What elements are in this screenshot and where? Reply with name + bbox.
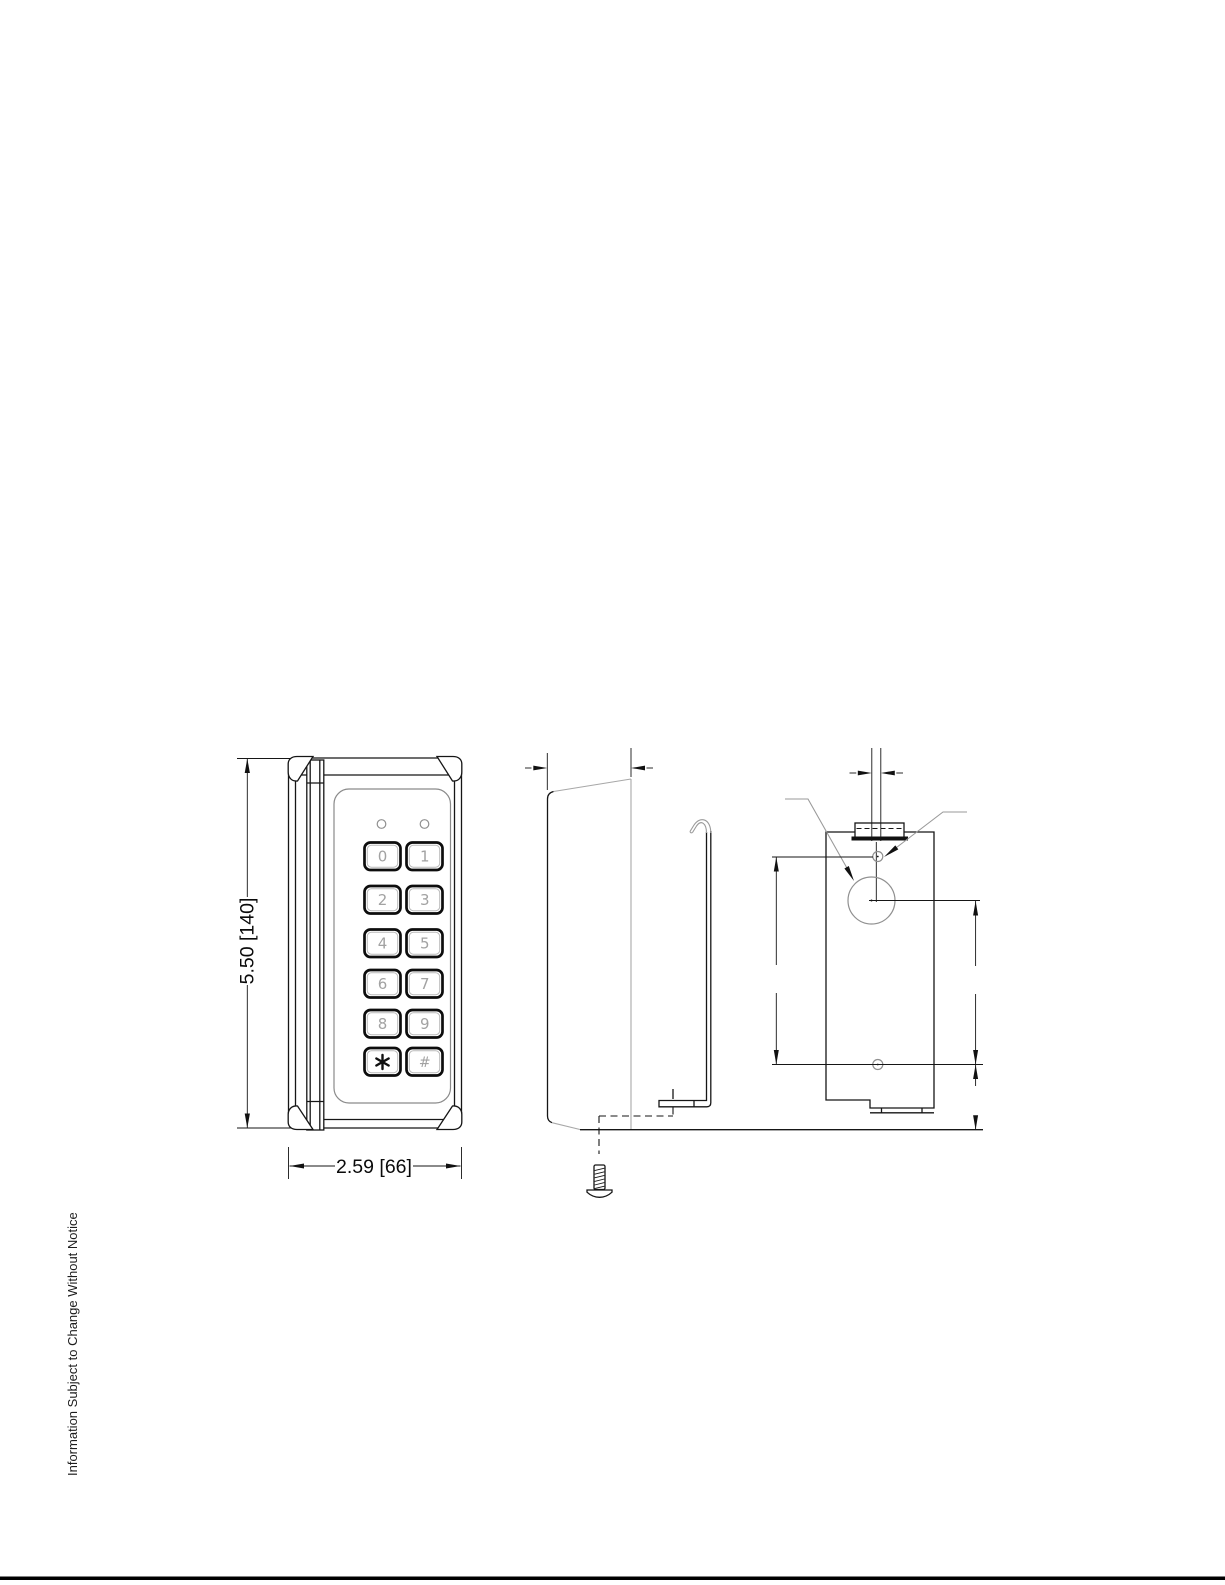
bottom-lip [870,1108,934,1113]
keypad-keys: 0 1 2 3 4 [365,843,443,1076]
svg-text:0: 0 [378,848,388,866]
led-left [377,820,386,829]
key-3: 3 [407,886,443,914]
dimension-drawing: 5.50 [140] 0 [0,0,1225,1585]
hole-to-bottom-dimension [973,1065,978,1130]
svg-text:8: 8 [378,1015,388,1033]
corner-wing-bottom-right [437,1106,462,1130]
back-plate-outline [826,832,934,1108]
housing-bottom-edge [552,1123,580,1130]
leader-line-cable-hole [785,799,854,881]
side-view [525,748,983,1197]
key-0: 0 [365,843,401,871]
depth-dimension [525,748,653,790]
height-dimension-label: 5.50 [140] [237,898,259,985]
front-view: 5.50 [140] 0 [237,757,462,1180]
height-dimension: 5.50 [140] [237,759,301,1129]
width-dimension: 2.59 [66] [289,1147,462,1179]
mounting-bracket [659,820,711,1107]
top-screw-hole [873,852,883,862]
width-dimension-label: 2.59 [66] [336,1156,412,1178]
svg-text:3: 3 [420,891,430,909]
key-5: 5 [407,930,443,958]
key-7: 7 [407,970,443,998]
svg-text:1: 1 [420,848,430,866]
corner-wing-top-right [437,757,462,782]
back-view [772,748,983,1130]
key-6: 6 [365,970,401,998]
top-tab [852,823,909,841]
bracket-top-hook [690,820,711,833]
housing-front-profile [548,792,554,1123]
svg-text:9: 9 [420,1015,430,1033]
hole-spacing-dimension [772,857,983,1065]
side-strip [307,760,324,1130]
key-9: 9 [407,1010,443,1038]
screw-assembly-path [599,1108,673,1155]
key-2: 2 [365,886,401,914]
footer-notice: Information Subject to Change Without No… [65,1212,80,1476]
housing-top-edge [554,779,632,792]
svg-text:5: 5 [420,935,430,953]
key-4: 4 [365,930,401,958]
svg-text:6: 6 [378,975,388,993]
screw-head [587,1190,612,1197]
page-bottom-rule [0,1577,1225,1581]
mounting-screw [587,1165,612,1197]
key-star [365,1048,401,1076]
svg-text:7: 7 [420,975,430,993]
key-hash: # [407,1048,443,1076]
drawing-page: 5.50 [140] 0 [0,0,1225,1585]
key-8: 8 [365,1010,401,1038]
svg-text:2: 2 [378,891,388,909]
key-1: 1 [407,843,443,871]
led-right [420,820,429,829]
cable-to-hole-dimension [973,901,978,1065]
svg-text:4: 4 [378,935,388,953]
svg-text:#: # [419,1055,431,1071]
